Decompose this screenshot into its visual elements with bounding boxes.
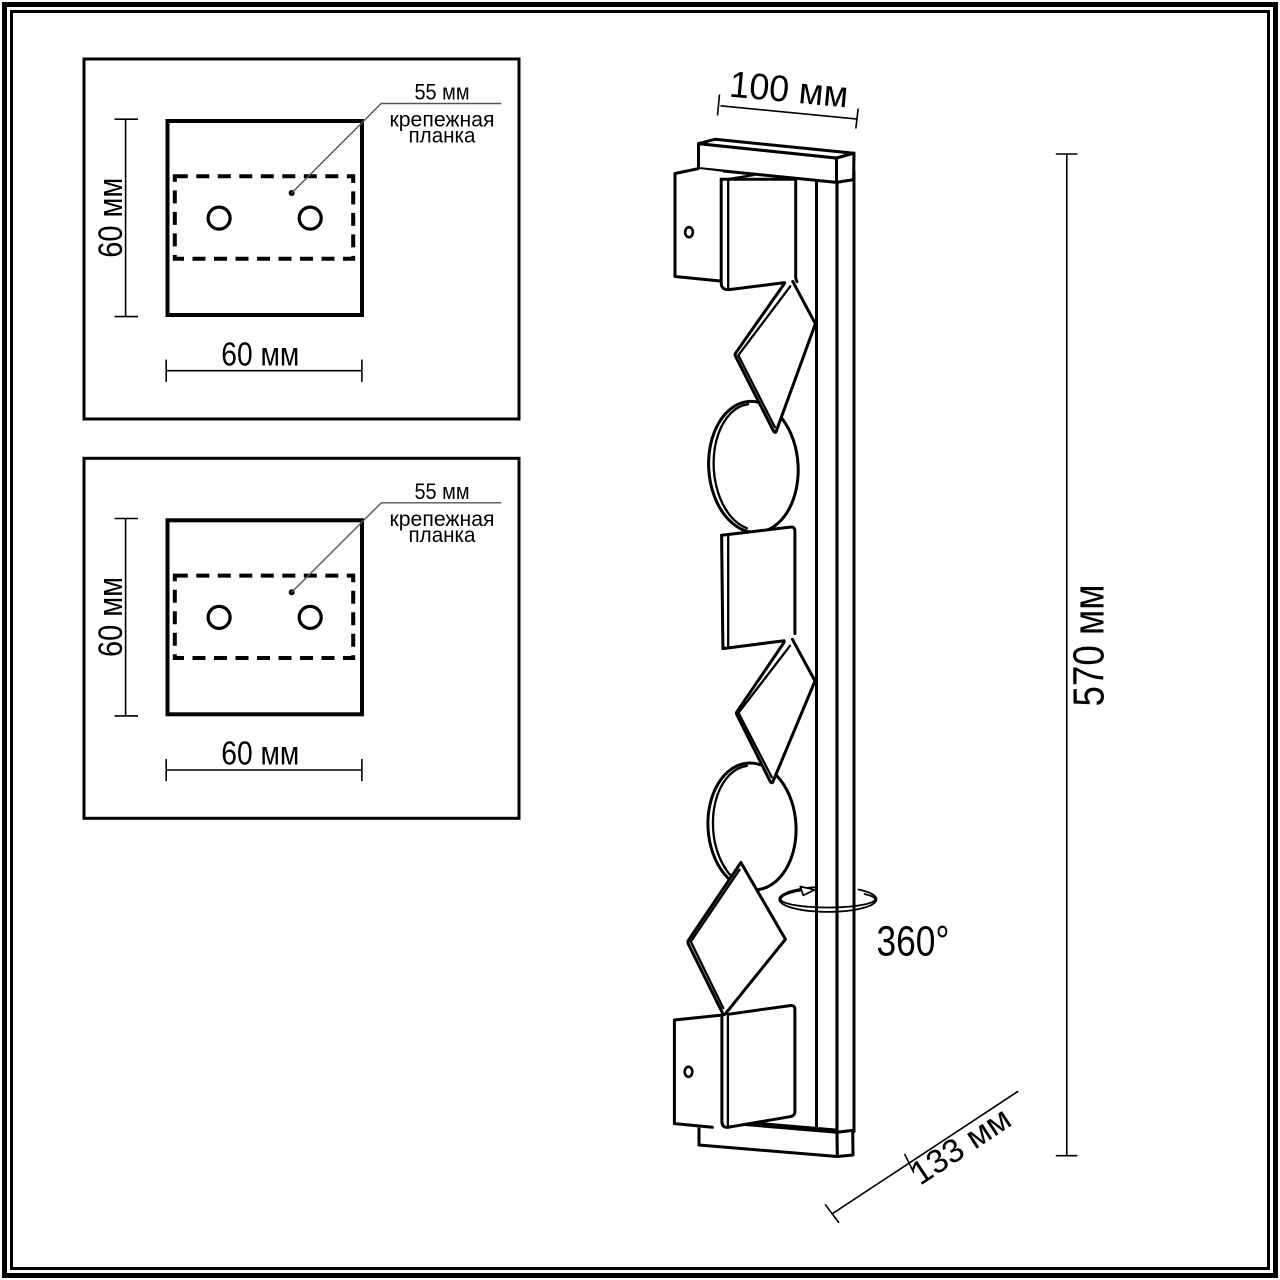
svg-text:60 мм: 60 мм xyxy=(221,336,299,373)
svg-text:планка: планка xyxy=(409,125,476,148)
svg-text:570 мм: 570 мм xyxy=(1065,585,1114,707)
svg-text:60 мм: 60 мм xyxy=(92,178,130,258)
svg-text:55 мм: 55 мм xyxy=(415,80,470,105)
svg-text:360°: 360° xyxy=(877,919,950,966)
